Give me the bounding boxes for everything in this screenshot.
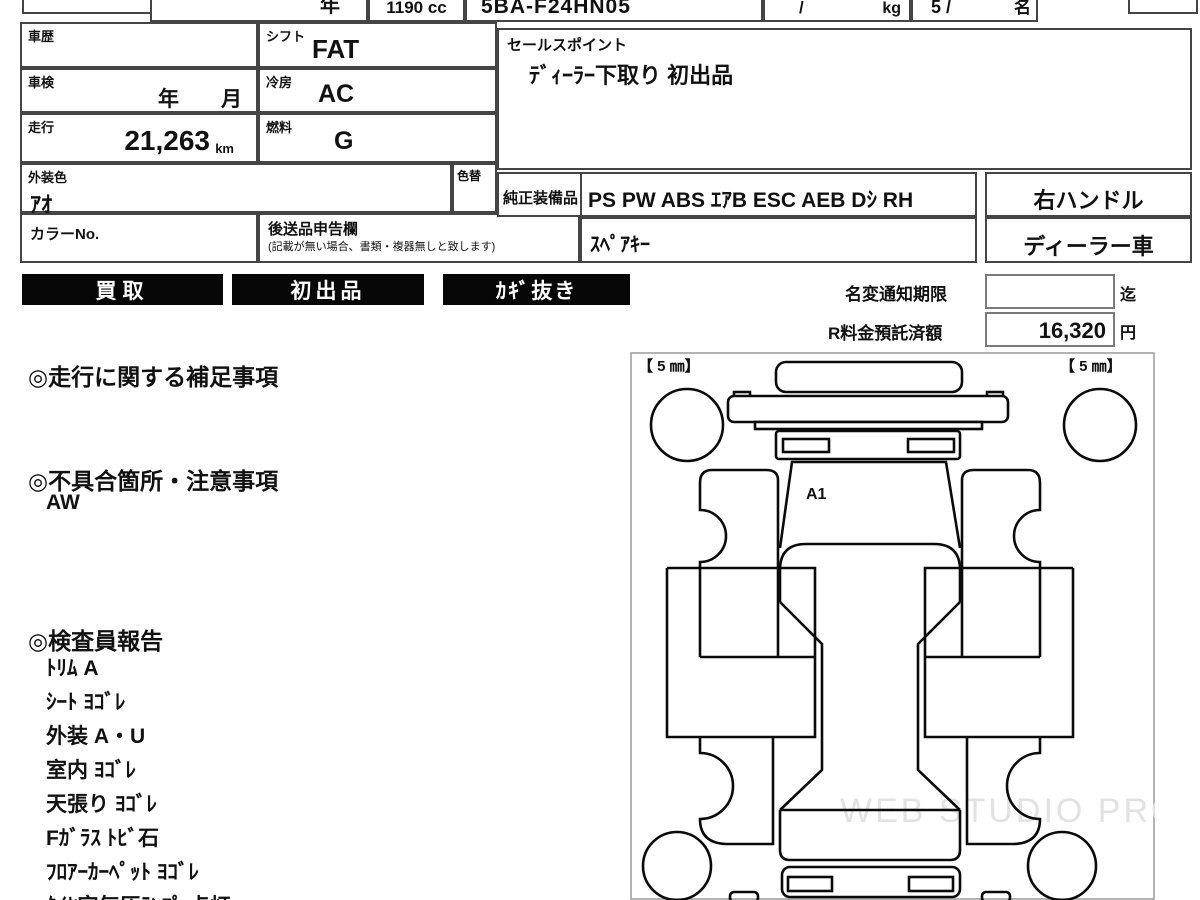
capacity-value: 5 / [931,0,951,18]
inspection-value: 年 月 [158,83,242,113]
later-items-note: (記載が無い場合、書類・複器無しと致します) [268,238,495,254]
exterior-color-cell: 外装色 ｱｵ [20,163,452,213]
fuel-cell: 燃料 G [258,113,497,163]
deposit-label: R料金預託済額 [828,319,942,344]
name-change-label: 名変通知期限 [845,280,947,305]
aircon-value: AC [318,80,354,109]
weight-slash: / [799,0,804,18]
color-no-label: カラーNo. [30,223,99,244]
inspector-item: 室内 ﾖｺﾞﾚ [46,754,136,784]
shift-cell: シフト FAT [258,22,497,68]
sales-point-label: セールスポイント [507,34,627,55]
weight-unit: kg [882,0,901,18]
equipment-label-cell: 純正装備品 [497,172,582,217]
fuel-label: 燃料 [266,117,292,136]
dealer-car-cell: ディーラー車 [985,217,1192,263]
name-change-until: 迄 [1120,281,1136,305]
aircon-label: 冷房 [266,72,292,91]
inspection-label: 車検 [28,72,54,91]
equipment-items-cell: PS PW ABS ｴｱB ESC AEB Dｼ RH [580,172,977,217]
history-cell: 車歴 [20,22,258,68]
front-lip [755,422,982,429]
header-weight-cell: / kg [763,0,911,22]
aircon-cell: 冷房 AC [258,68,497,113]
color-no-cell: カラーNo. [20,213,258,263]
capacity-unit: 名 [1014,0,1031,18]
handle-value: 右ハンドル [987,183,1190,215]
header-capacity-cell: 5 / 名 [911,0,1038,22]
deposit-value: 16,320 [1039,318,1106,344]
inspector-item: ﾄﾘﾑ A [46,652,99,682]
name-change-box [985,274,1115,309]
model-code: 5BA-F24HN05 [481,0,631,19]
mileage-note-title: ◎走行に関する補足事項 [28,358,278,392]
mileage-value: 21,263 [124,125,210,157]
sales-point-box: セールスポイント ﾃﾞｨｰﾗｰ下取り 初出品 [497,28,1192,170]
color-change-cell: 色替 [452,163,497,213]
shift-value: FAT [312,34,359,65]
equipment-items: PS PW ABS ｴｱB ESC AEB Dｼ RH [588,184,913,214]
spare-key-value: ｽﾍﾟｱｷｰ [590,228,650,257]
auction-sheet: 年 1190 cc 5BA-F24HN05 / kg 5 / 名 車歴 シフト … [0,0,1200,900]
inspector-item: Fｶﾞﾗｽ ﾄﾋﾞ石 [46,822,159,852]
header-displacement-cell: 1190 cc [368,0,465,22]
defect-value: AW [46,491,80,515]
damage-mark-a1: A1 [806,486,827,503]
inspector-title: ◎検査員報告 [28,622,163,656]
deposit-box: 16,320 [985,312,1115,347]
color-change-label: 色替 [457,167,481,184]
handle-cell: 右ハンドル [985,172,1192,217]
header-right-box [1128,0,1198,14]
front-panel [776,431,960,459]
spare-key-cell: ｽﾍﾟｱｷｰ [580,217,977,263]
mileage-unit: km [215,141,234,156]
fuel-value: G [334,127,353,156]
car-damage-diagram: WEB STUDIO PRO 【 5 ㎜】 【 5 ㎜】 [630,352,1155,900]
mileage-label: 走行 [28,117,54,136]
inspector-item: 外装 A・U [46,720,145,750]
badge-key-missing: ｶｷﾞ抜き [443,274,630,305]
inspector-item: ﾀｲﾔ空気圧ﾗﾝﾌﾟ 点灯 [46,890,230,900]
equipment-label: 純正装備品 [503,187,578,208]
inspector-item: ｼｰﾄ ﾖｺﾞﾚ [46,686,125,716]
later-items-cell: 後送品申告欄 (記載が無い場合、書類・複器無しと致します) [258,213,580,263]
inspector-item: 天張り ﾖｺﾞﾚ [46,788,157,818]
history-label: 車歴 [28,26,54,45]
rear-bumper [782,867,960,897]
year-suffix: 年 [320,0,340,18]
exterior-color-label: 外装色 [28,167,67,186]
mileage-cell: 走行 21,263 km [20,113,258,163]
deposit-unit: 円 [1120,319,1136,343]
header-model-code-cell: 5BA-F24HN05 [465,0,763,22]
header-empty-box [22,0,168,14]
sales-point-value: ﾃﾞｨｰﾗｰ下取り 初出品 [529,58,733,90]
front-grille-bar [728,396,1008,422]
displacement-value: 1190 cc [370,0,463,18]
tread-front-right-label: 【 5 ㎜】 [1060,357,1122,375]
badge-purchase: 買取 [22,274,223,305]
later-items-label: 後送品申告欄 [268,218,358,239]
tread-front-left-label: 【 5 ㎜】 [638,357,700,375]
inspection-cell: 車検 年 月 [20,68,258,113]
badge-first-listing: 初出品 [232,274,424,305]
inspector-item: ﾌﾛｱｰｶｰﾍﾟｯﾄ ﾖｺﾞﾚ [46,856,199,886]
shift-label: シフト [266,26,305,45]
dealer-car-value: ディーラー車 [987,229,1190,261]
header-year-cell: 年 [150,0,368,22]
